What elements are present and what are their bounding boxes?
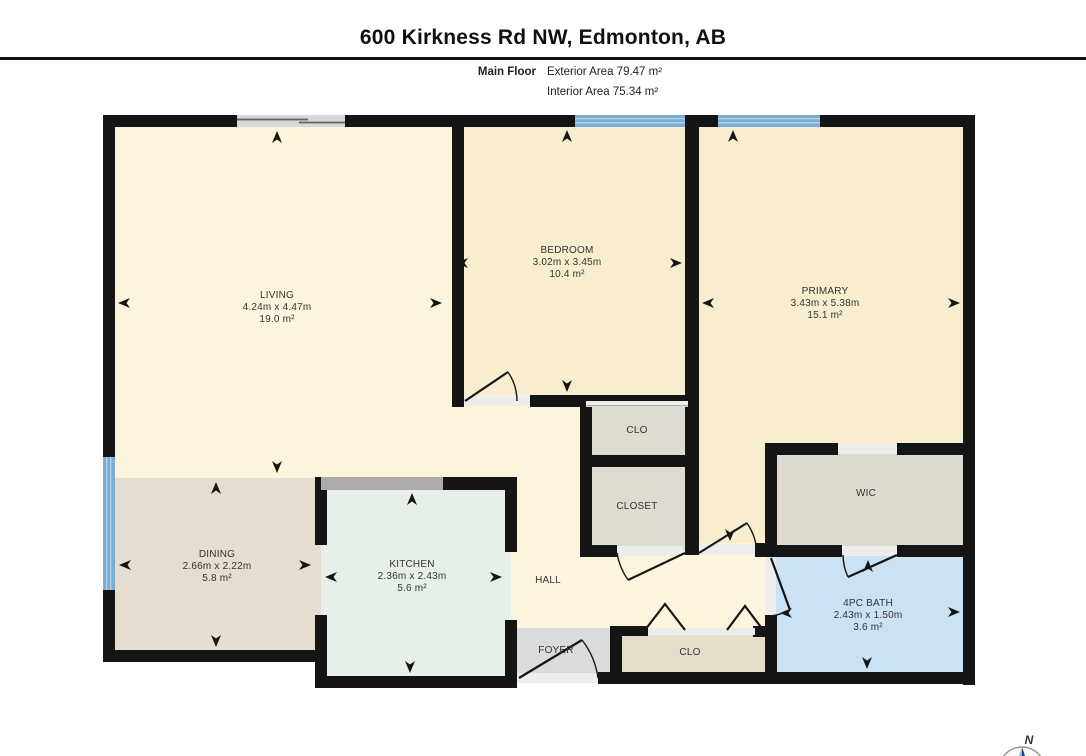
living-window [237,115,345,127]
room-label-kitchen: KITCHEN 2.36m x 2.43m 5.6 m² [378,559,447,595]
compass-north-label: N [1025,733,1034,747]
dining-window [103,457,115,590]
room-label-bedroom-closet: CLO [626,425,647,437]
room-label-hall: HALL [535,575,561,587]
room-label-entry-closet: CLO [679,647,700,659]
room-label-bath: 4PC BATH 2.43m x 1.50m 3.6 m² [834,598,903,634]
room-label-primary: PRIMARY 3.43m x 5.38m 15.1 m² [791,286,860,322]
compass-icon: N [999,733,1045,756]
room-label-wic: WIC [856,488,876,500]
room-label-dining: DINING 2.66m x 2.22m 5.8 m² [183,549,252,585]
primary-window [718,115,820,127]
room-label-bedroom: BEDROOM 3.02m x 3.45m 10.4 m² [533,245,602,281]
room-label-living: LIVING 4.24m x 4.47m 19.0 m² [243,290,312,326]
floor-plan-page: 600 Kirkness Rd NW, Edmonton, AB Main Fl… [0,0,1086,756]
kitchen-counter [321,477,443,490]
bedroom-window [575,115,685,127]
floor-plan-drawing: N [0,0,1086,756]
room-label-foyer: FOYER [538,645,573,657]
room-label-hall-closet: CLOSET [616,501,657,513]
